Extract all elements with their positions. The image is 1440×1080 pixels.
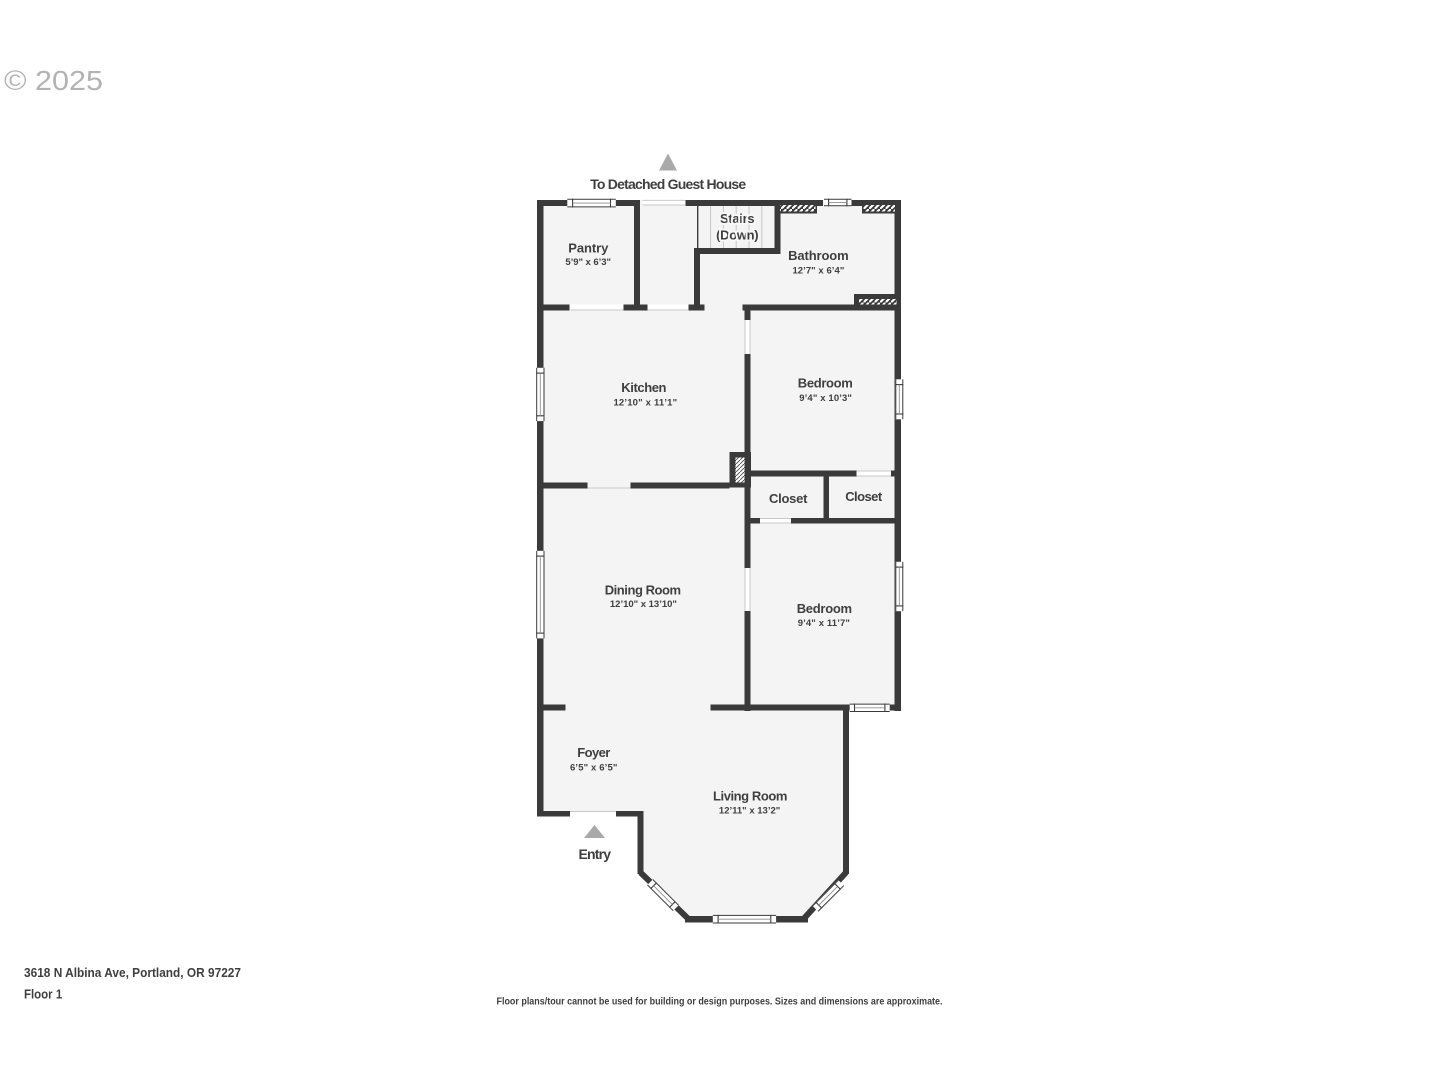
svg-text:Entry: Entry [579,846,612,862]
svg-text:3618 N Albina Ave, Portland, O: 3618 N Albina Ave, Portland, OR 97227 [24,966,241,980]
svg-text:6’5" x 6’5": 6’5" x 6’5" [570,763,617,774]
svg-text:Floor 1: Floor 1 [24,988,62,1002]
svg-text:9’4" x 11’7": 9’4" x 11’7" [798,618,850,629]
svg-text:12’10" x 11’1": 12’10" x 11’1" [613,398,677,409]
svg-text:Closet: Closet [845,489,883,504]
svg-text:Bedroom: Bedroom [798,376,853,391]
svg-text:(Down): (Down) [716,227,759,242]
svg-text:Kitchen: Kitchen [621,380,666,395]
svg-text:Foyer: Foyer [577,745,610,760]
svg-text:5’9" x 6’3": 5’9" x 6’3" [565,257,611,268]
svg-text:Dining Room: Dining Room [605,583,681,598]
svg-text:Stairs: Stairs [720,211,755,226]
svg-text:12’10" x 13’10": 12’10" x 13’10" [610,599,677,610]
svg-text:© 2025: © 2025 [4,65,103,96]
svg-text:Floor plans/tour cannot be use: Floor plans/tour cannot be used for buil… [497,996,943,1007]
svg-text:12’11" x 13’2": 12’11" x 13’2" [719,806,780,817]
svg-text:9’4" x 10’3": 9’4" x 10’3" [799,393,852,404]
svg-text:12’7" x 6’4": 12’7" x 6’4" [792,266,844,277]
svg-text:To Detached Guest House: To Detached Guest House [590,176,746,192]
svg-text:Pantry: Pantry [568,241,609,256]
svg-text:Bathroom: Bathroom [788,248,849,263]
svg-text:Closet: Closet [769,491,808,506]
svg-text:Bedroom: Bedroom [797,601,852,616]
svg-text:Living Room: Living Room [713,788,787,803]
